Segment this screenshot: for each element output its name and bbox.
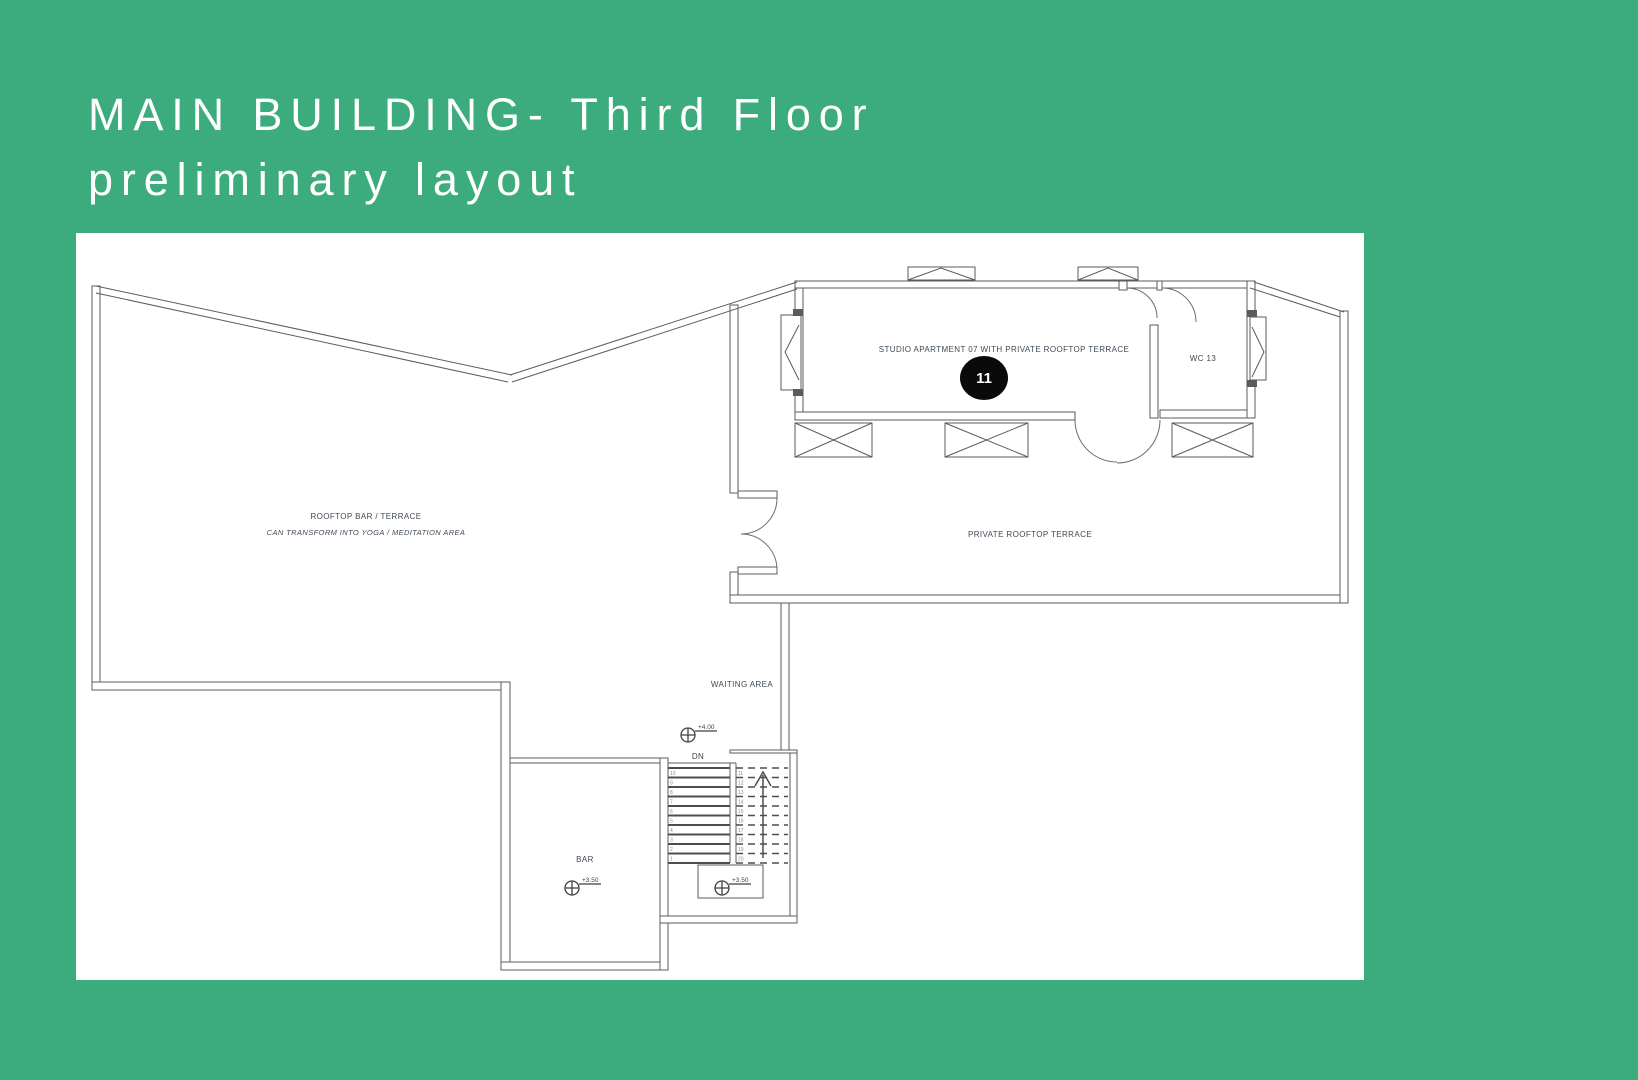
step-number: 1 <box>670 857 673 863</box>
step-number: 11 <box>738 771 743 777</box>
stairs-direction-label: DN <box>692 752 704 761</box>
studio-apartment-label: STUDIO APARTMENT 07 WITH PRIVATE ROOFTOP… <box>879 345 1130 354</box>
wall-studio-bottom <box>795 412 1075 420</box>
door-jamb <box>1157 281 1162 290</box>
step-number: 7 <box>670 800 673 806</box>
window-icon <box>1078 267 1138 280</box>
window-icon <box>908 267 975 280</box>
elevation-value: +3.50 <box>732 877 749 884</box>
wall-bottom-left <box>92 682 510 690</box>
door-jamb <box>1119 281 1127 290</box>
wall-studio-wc-divider <box>1150 325 1158 418</box>
step-number: 18 <box>738 838 744 844</box>
step-number: 3 <box>670 838 673 844</box>
step-number: 2 <box>670 847 673 853</box>
window-jamb <box>793 309 803 316</box>
unit-number-badge: 11 <box>960 356 1008 400</box>
wall-terrace-bottom <box>730 595 1348 603</box>
step-number: 5 <box>670 819 673 825</box>
floor-plan: 10 9 8 7 6 5 4 3 2 1 11 12 13 14 15 16 1… <box>0 0 1638 1080</box>
step-number: 6 <box>670 809 673 815</box>
step-number: 9 <box>670 781 673 787</box>
wall-middle-upper <box>730 305 738 493</box>
step-number: 8 <box>670 790 673 796</box>
wall-bar-right <box>660 758 668 970</box>
wc-label: WC 13 <box>1190 354 1217 363</box>
wall-wc-bottom <box>1160 410 1255 418</box>
elevation-value: +3.50 <box>582 877 599 884</box>
step-number: 17 <box>738 828 744 834</box>
private-terrace-label: PRIVATE ROOFTOP TERRACE <box>968 530 1092 539</box>
crossed-boxes <box>795 423 1253 457</box>
wall-vertical-bar-left <box>501 682 510 970</box>
step-number: 4 <box>670 828 673 834</box>
waiting-area-label: WAITING AREA <box>711 680 774 689</box>
wall-corridor <box>781 603 789 752</box>
door-jamb <box>738 567 777 574</box>
step-number: 10 <box>670 771 676 777</box>
window-jamb <box>793 389 803 396</box>
wall-stair-bottom <box>660 916 797 923</box>
step-number: 19 <box>738 847 744 853</box>
wall-stair-landing-top <box>730 750 797 753</box>
rooftop-bar-sublabel: CAN TRANSFORM INTO YOGA / MEDITATION ARE… <box>267 528 466 537</box>
wall-studio-top <box>795 281 1255 288</box>
window-jamb <box>1247 310 1257 317</box>
step-number: 13 <box>738 790 744 796</box>
wall-bar-bottom <box>501 962 668 970</box>
window-icon <box>1250 317 1266 380</box>
step-number: 15 <box>738 809 744 815</box>
step-number: 20 <box>738 857 744 863</box>
step-number: 12 <box>738 781 744 787</box>
step-number: 16 <box>738 819 744 825</box>
elevation-value: +4.00 <box>698 724 715 731</box>
step-number: 14 <box>738 800 744 806</box>
wall-bar-top <box>510 758 660 763</box>
bar-label: BAR <box>576 855 594 864</box>
wall-stair-right <box>790 750 797 923</box>
door-jamb <box>738 491 777 498</box>
rooftop-bar-label: ROOFTOP BAR / TERRACE <box>310 512 421 521</box>
wall-right <box>1340 311 1348 603</box>
window-jamb <box>1247 380 1257 387</box>
wall-left <box>92 286 100 690</box>
unit-badge-number: 11 <box>976 370 992 387</box>
presentation-slide: MAIN BUILDING- Third Floor preliminary l… <box>0 0 1638 1080</box>
stair-landing <box>698 865 763 898</box>
